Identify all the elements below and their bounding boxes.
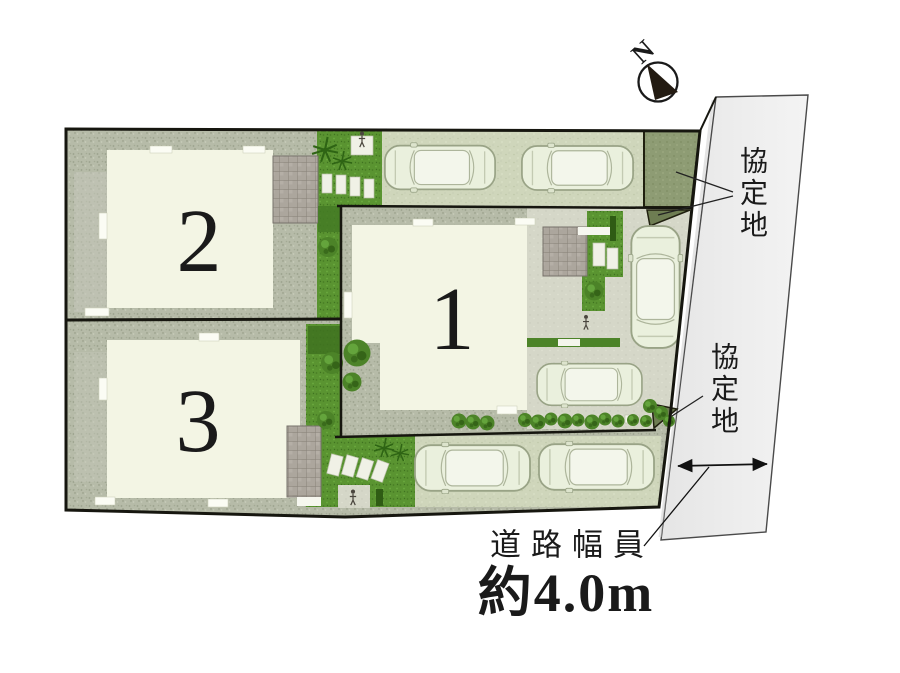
site-plan-canvas: N 1 2 3 協定地 協定地 道路幅員 約4.0m <box>0 0 900 673</box>
entry-step <box>297 497 321 506</box>
terrace-lot3 <box>287 426 321 497</box>
lot-3-number: 3 <box>176 377 221 467</box>
lot-2-number: 2 <box>177 197 222 287</box>
car-icon <box>628 226 683 348</box>
car-icon <box>539 441 654 493</box>
car-icon <box>415 442 530 494</box>
agreement-parcel-top <box>644 131 700 207</box>
entry-step <box>578 227 610 235</box>
terrace-lot2 <box>273 156 318 223</box>
gravel-patch <box>74 172 107 312</box>
car-icon <box>522 143 633 193</box>
gravel-patch <box>74 352 107 482</box>
car-icon <box>537 361 642 408</box>
car-icon <box>385 143 495 192</box>
agreement-area-label-middle: 協定地 <box>708 342 736 438</box>
road-width-value: 約4.0m <box>478 566 654 620</box>
road-width-title: 道路幅員 <box>490 530 654 561</box>
agreement-area-label-top: 協定地 <box>737 146 765 242</box>
lot-1-number: 1 <box>430 275 475 365</box>
